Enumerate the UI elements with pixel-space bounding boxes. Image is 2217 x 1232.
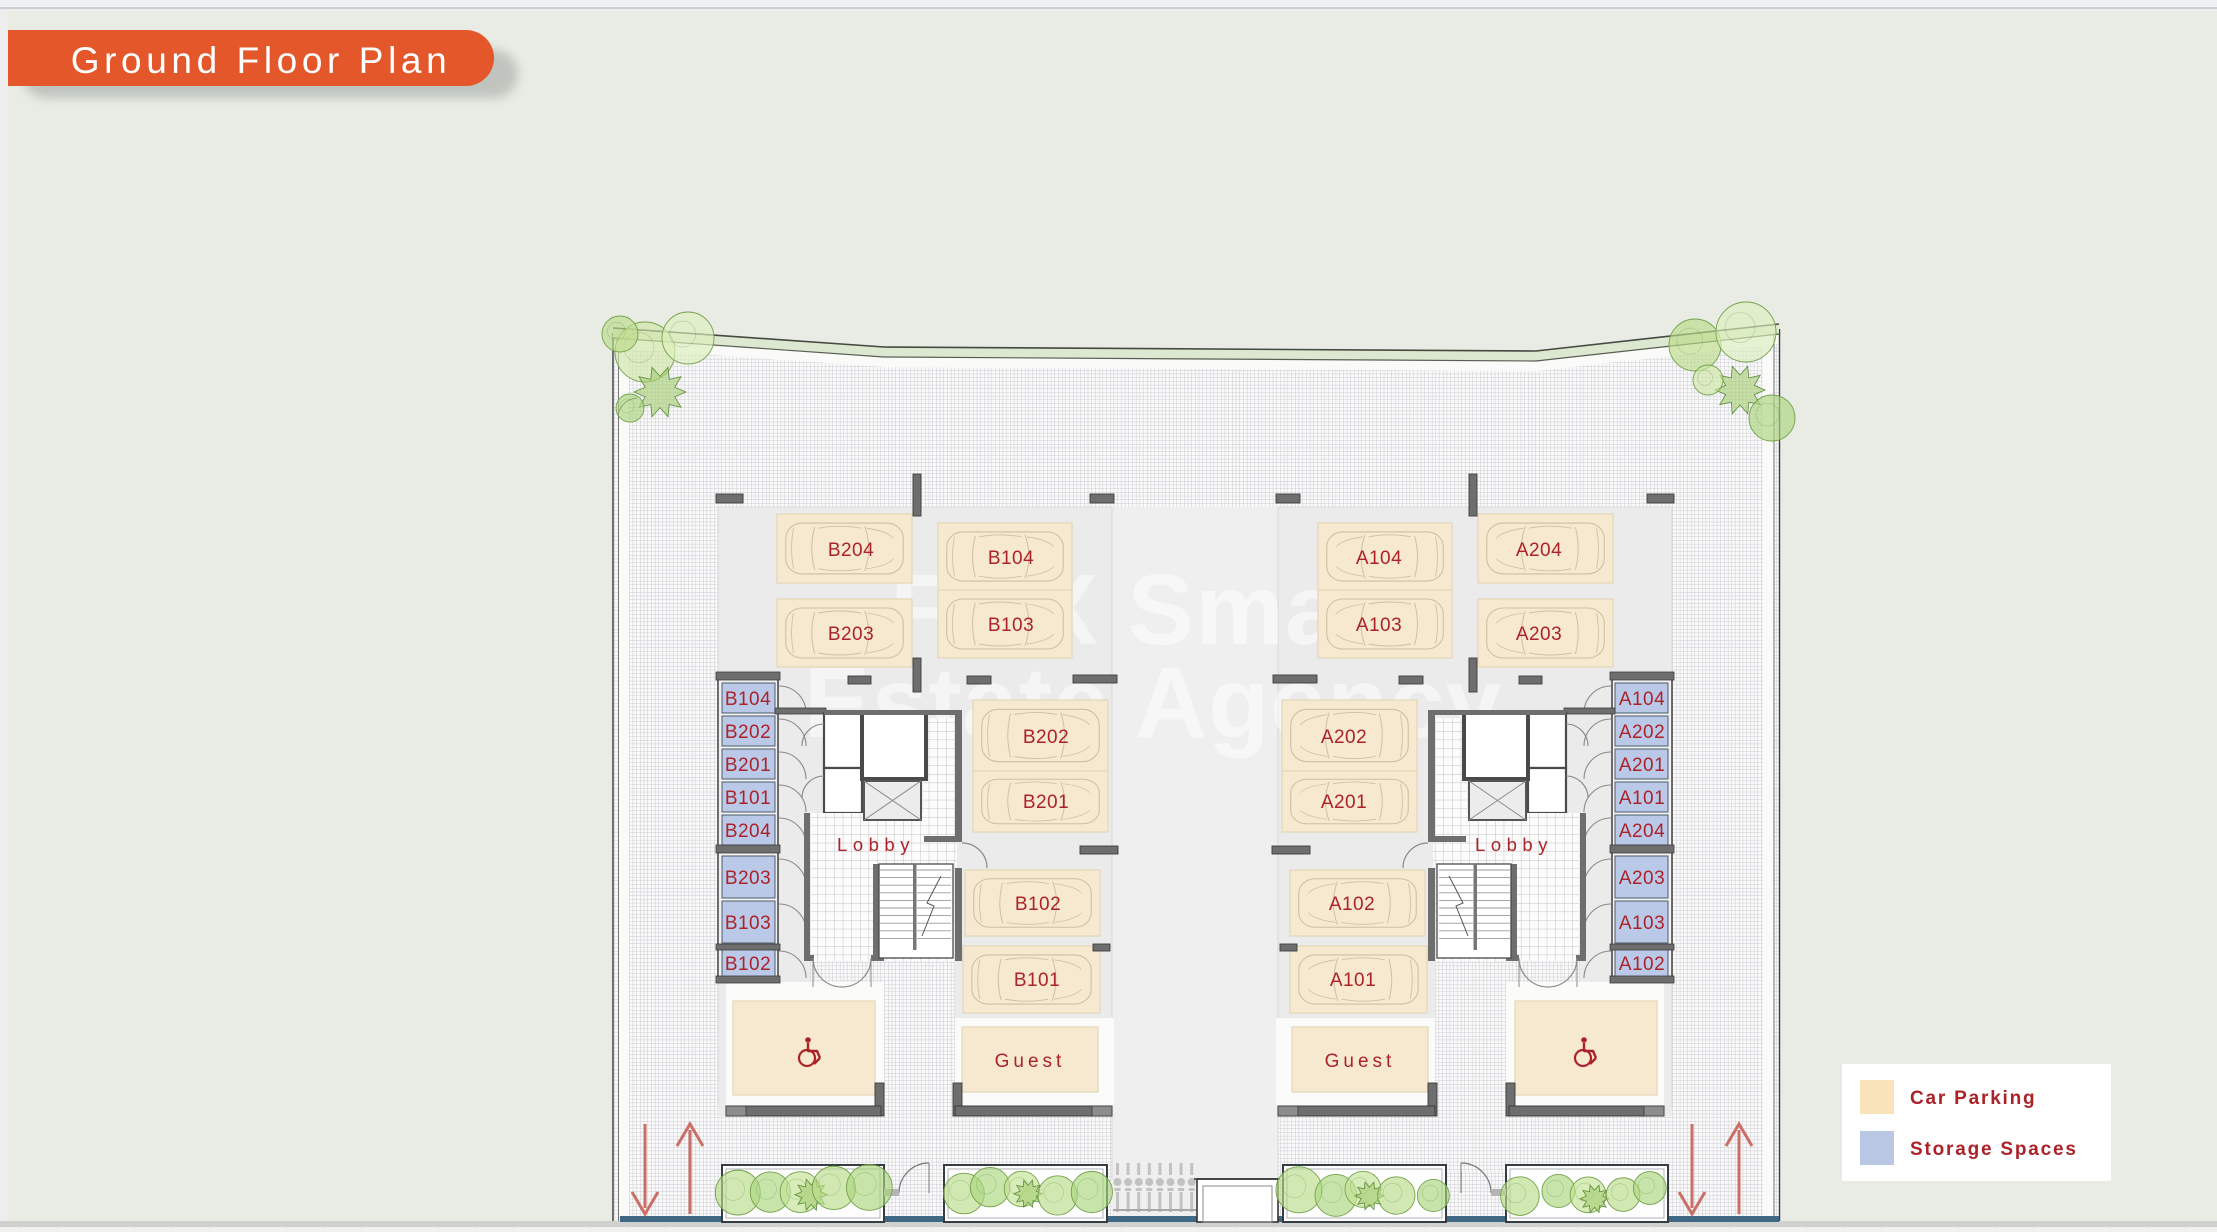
svg-text:B102: B102: [725, 954, 771, 975]
svg-text:A104: A104: [1356, 548, 1402, 569]
svg-text:A201: A201: [1619, 755, 1665, 776]
svg-text:Ground Floor Plan: Ground Floor Plan: [71, 40, 452, 81]
svg-text:B203: B203: [828, 624, 874, 645]
svg-text:A201: A201: [1321, 792, 1367, 813]
svg-text:Lobby: Lobby: [1475, 834, 1553, 855]
svg-text:A103: A103: [1619, 913, 1665, 934]
svg-text:B202: B202: [725, 722, 771, 743]
svg-text:B203: B203: [725, 868, 771, 889]
svg-text:A202: A202: [1321, 727, 1367, 748]
svg-text:A102: A102: [1619, 954, 1665, 975]
svg-text:B104: B104: [988, 548, 1034, 569]
svg-text:Car Parking: Car Parking: [1910, 1088, 2036, 1109]
svg-text:A202: A202: [1619, 722, 1665, 743]
svg-text:A204: A204: [1619, 821, 1665, 842]
svg-text:B204: B204: [828, 540, 874, 561]
svg-text:A203: A203: [1619, 868, 1665, 889]
svg-text:Lobby: Lobby: [837, 834, 915, 855]
svg-text:A104: A104: [1619, 689, 1665, 710]
svg-text:A102: A102: [1329, 894, 1375, 915]
svg-text:B101: B101: [1014, 970, 1060, 991]
svg-text:B204: B204: [725, 821, 771, 842]
svg-text:B201: B201: [725, 755, 771, 776]
svg-text:B202: B202: [1023, 727, 1069, 748]
svg-text:Guest: Guest: [995, 1051, 1066, 1072]
svg-text:B104: B104: [725, 689, 771, 710]
svg-text:Storage Spaces: Storage Spaces: [1910, 1139, 2078, 1160]
svg-text:B102: B102: [1015, 894, 1061, 915]
svg-text:Guest: Guest: [1325, 1051, 1396, 1072]
svg-text:A203: A203: [1516, 624, 1562, 645]
svg-text:A101: A101: [1619, 788, 1665, 809]
svg-text:A204: A204: [1516, 540, 1562, 561]
svg-text:A101: A101: [1330, 970, 1376, 991]
svg-text:B101: B101: [725, 788, 771, 809]
svg-text:A103: A103: [1356, 615, 1402, 636]
svg-text:B103: B103: [988, 615, 1034, 636]
svg-text:B201: B201: [1023, 792, 1069, 813]
svg-text:B103: B103: [725, 913, 771, 934]
